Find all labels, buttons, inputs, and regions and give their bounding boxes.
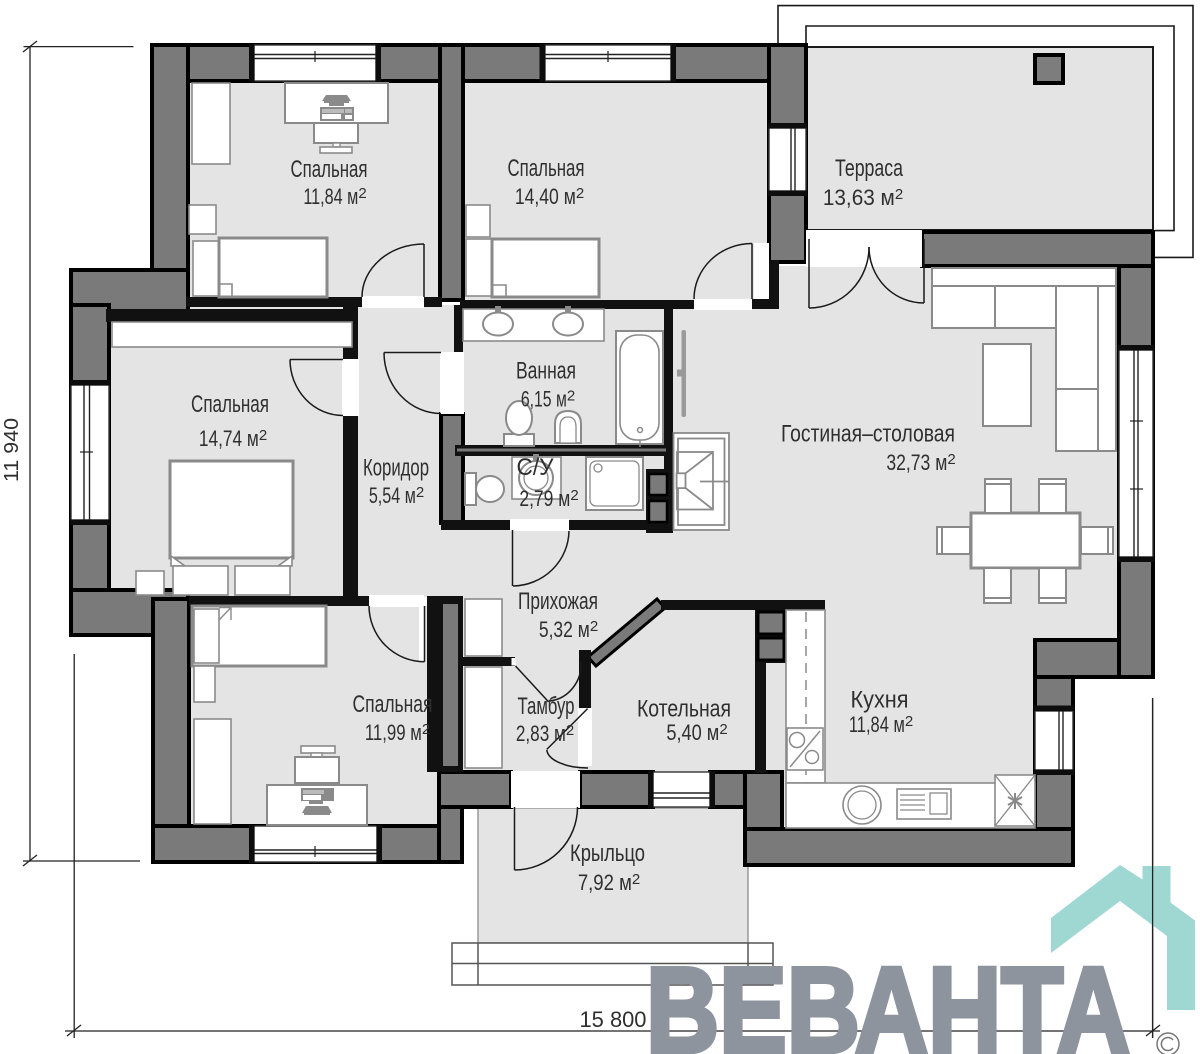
svg-text:Коридор: Коридор <box>363 455 429 482</box>
svg-text:Спальная: Спальная <box>191 391 269 418</box>
svg-text:Тамбур: Тамбур <box>518 693 575 720</box>
svg-text:Спальная: Спальная <box>291 156 368 183</box>
svg-text:5,40 м2: 5,40 м2 <box>666 720 727 745</box>
svg-text:32,73 м2: 32,73 м2 <box>886 450 955 475</box>
svg-text:Котельная: Котельная <box>637 696 731 723</box>
svg-text:13,63 м2: 13,63 м2 <box>823 185 903 210</box>
svg-text:Крыльцо: Крыльцо <box>570 840 645 867</box>
svg-text:11,99 м2: 11,99 м2 <box>365 720 430 745</box>
svg-text:14,40 м2: 14,40 м2 <box>515 184 584 209</box>
svg-text:5,32 м2: 5,32 м2 <box>539 617 598 642</box>
svg-text:Прихожая: Прихожая <box>518 588 598 615</box>
svg-text:7,92 м2: 7,92 м2 <box>578 870 640 895</box>
svg-text:Спальная: Спальная <box>353 691 433 718</box>
svg-text:2,79 м2: 2,79 м2 <box>519 486 578 511</box>
svg-text:Ванная: Ванная <box>516 358 576 385</box>
svg-text:15 800: 15 800 <box>580 1007 647 1032</box>
svg-text:С/У: С/У <box>517 454 555 481</box>
svg-text:Терраса: Терраса <box>835 155 903 182</box>
svg-text:11,84 м2: 11,84 м2 <box>303 184 366 209</box>
svg-text:14,74 м2: 14,74 м2 <box>199 426 267 451</box>
svg-text:Гостиная–столовая: Гостиная–столовая <box>781 420 955 447</box>
svg-text:2,83 м2: 2,83 м2 <box>516 721 574 746</box>
svg-text:ВЕВАНТА: ВЕВАНТА <box>646 942 1130 1054</box>
svg-text:11 940: 11 940 <box>1 418 23 482</box>
svg-text:Кухня: Кухня <box>851 686 909 713</box>
svg-text:Спальная: Спальная <box>508 155 585 182</box>
svg-text:11,84 м2: 11,84 м2 <box>849 712 913 737</box>
